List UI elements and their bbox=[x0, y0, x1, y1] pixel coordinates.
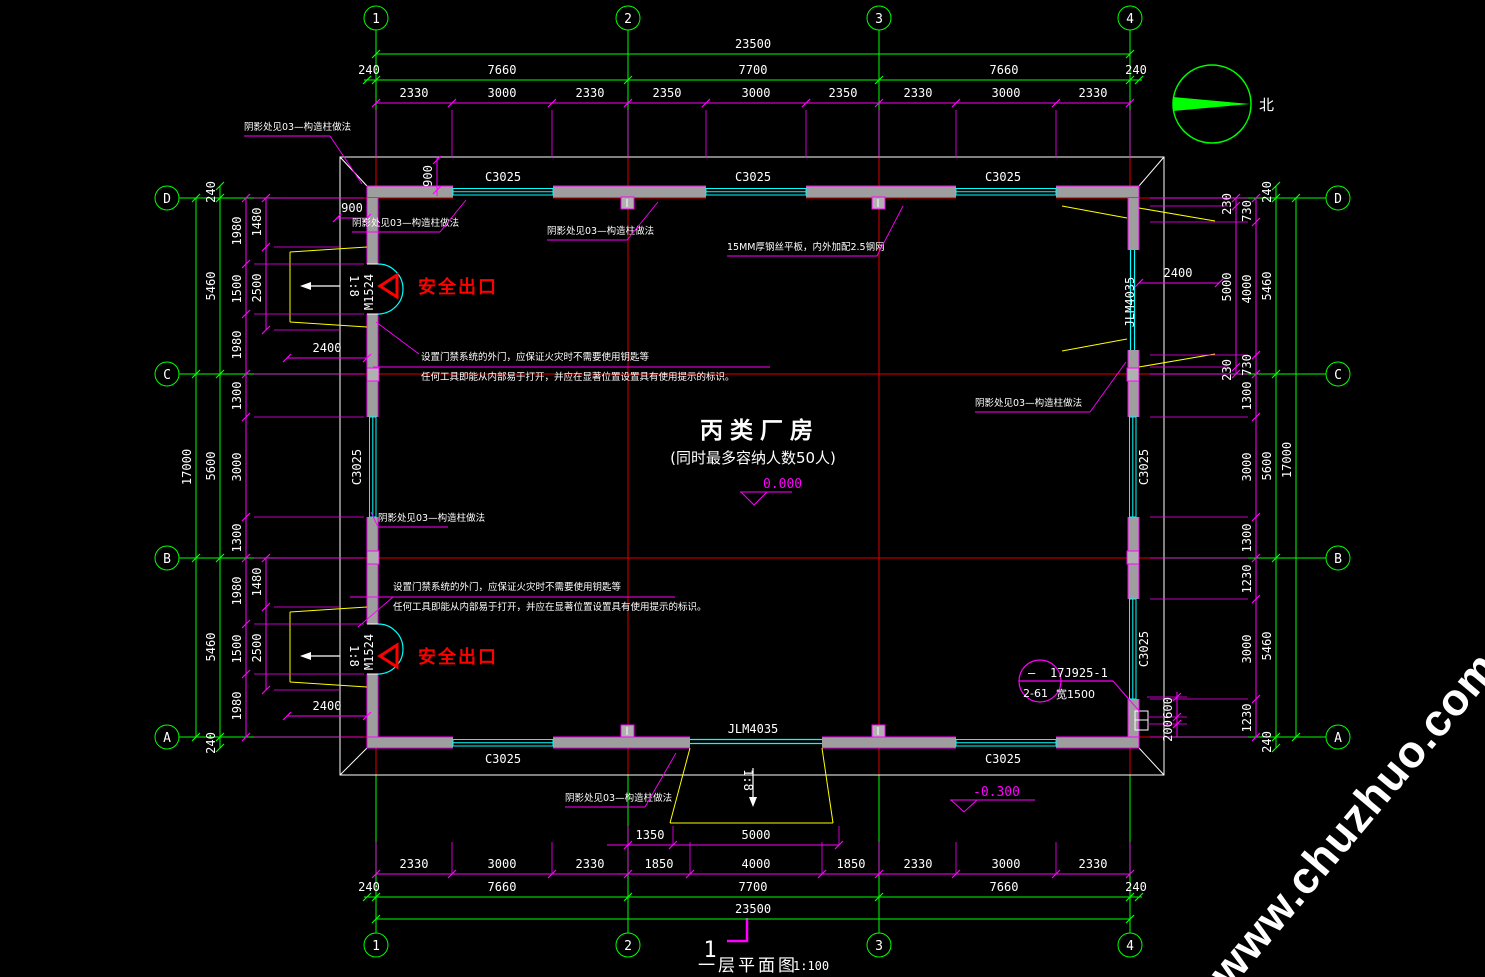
title-scale: 1:100 bbox=[793, 959, 829, 973]
detail-ref-page: 2-61 bbox=[1023, 687, 1048, 700]
window-label-right-1: C3025 bbox=[1137, 449, 1151, 485]
exit-label-top: 安全出口 bbox=[418, 276, 498, 298]
dim-line bbox=[376, 322, 419, 354]
note-text: 阴影处见03—构造柱做法 bbox=[565, 792, 672, 804]
axis-label-C-left: C bbox=[163, 368, 171, 383]
dim-label: 5460 bbox=[204, 272, 218, 301]
door-label-M1524-1: M1524 bbox=[362, 274, 376, 310]
dim-label: 5460 bbox=[1260, 632, 1274, 661]
dim-label: 7660 bbox=[990, 880, 1019, 894]
dim-label: 1850 bbox=[645, 857, 674, 871]
dim-label: 1350 bbox=[636, 828, 665, 842]
dim-label: 1980 bbox=[230, 217, 244, 246]
north-arrow-icon bbox=[1173, 97, 1250, 111]
dim-label: 4000 bbox=[742, 857, 771, 871]
dim-line bbox=[1090, 362, 1126, 412]
room-label: 丙类厂房 (同时最多容纳人数50人) bbox=[670, 417, 836, 467]
room-name: 丙类厂房 bbox=[700, 417, 820, 444]
dim-label: 230 bbox=[1220, 193, 1234, 215]
axis-label-A-right: A bbox=[1334, 731, 1342, 746]
window-label-top-3: C3025 bbox=[985, 170, 1021, 184]
north-label: 北 bbox=[1259, 96, 1274, 114]
dim-label: 230 bbox=[1220, 359, 1234, 381]
title-name: 一层平面图 bbox=[698, 956, 798, 976]
door-label-JLM4035-bottom: JLM4035 bbox=[728, 722, 779, 736]
dim-label: 1500 bbox=[230, 635, 244, 664]
safety-exit-top: 安全出口 bbox=[380, 275, 498, 298]
dim-label: 240 bbox=[1260, 181, 1274, 203]
dim-label: 240 bbox=[204, 181, 218, 203]
drawing-title: 1 一层平面图 1:100 bbox=[698, 918, 829, 976]
axis-label-4-top: 4 bbox=[1126, 12, 1134, 27]
dim-label: 240 bbox=[1260, 731, 1274, 753]
dim-label: 17000 bbox=[1280, 442, 1294, 478]
dim-label: 2330 bbox=[904, 86, 933, 100]
door-swing-arcs bbox=[378, 250, 1135, 744]
dim-label: 600 bbox=[1161, 697, 1175, 719]
note-text: 阴影处见03—构造柱做法 bbox=[975, 397, 1082, 409]
dim-label: 5600 bbox=[1260, 452, 1274, 481]
dim-label: 5600 bbox=[204, 452, 218, 481]
note-text: 任何工具即能从内部易于打开，并应在显著位置设置具有使用提示的标识。 bbox=[393, 601, 707, 613]
window-label-bottom-2: C3025 bbox=[985, 752, 1021, 766]
axis-label-D-right: D bbox=[1334, 192, 1342, 207]
dim-label: 1480 bbox=[250, 568, 264, 597]
dim-label: 2400 bbox=[313, 699, 342, 713]
dim-label: 1480 bbox=[250, 208, 264, 237]
door-label-JLM4035-right: JLM4035 bbox=[1123, 277, 1137, 328]
axis-label-C-right: C bbox=[1334, 368, 1342, 383]
dim-label: 200 bbox=[1161, 720, 1175, 742]
dim-label: 2330 bbox=[1079, 86, 1108, 100]
dim-label: 2330 bbox=[576, 86, 605, 100]
dim-label: 1230 bbox=[1240, 704, 1254, 733]
dim-label: 900 bbox=[341, 201, 363, 215]
exit-arrow-icon bbox=[380, 275, 397, 297]
window-label-right-2: C3025 bbox=[1137, 631, 1151, 667]
dim-label: 2330 bbox=[400, 86, 429, 100]
dim-label: 240 bbox=[358, 63, 380, 77]
axis-label-1-top: 1 bbox=[372, 12, 380, 27]
dim-label: 3000 bbox=[488, 86, 517, 100]
outdoor-level-marker bbox=[950, 800, 1035, 812]
dim-label: 17000 bbox=[180, 449, 194, 485]
dim-label: 1300 bbox=[1240, 382, 1254, 411]
note-text: 15MM厚钢丝平板，内外加配2.5钢网 bbox=[727, 241, 885, 253]
dim-line bbox=[877, 206, 903, 256]
dim-label: 240 bbox=[1125, 63, 1147, 77]
note-text: 设置门禁系统的外门，应保证火灾时不需要使用钥匙等 bbox=[393, 581, 622, 593]
dim-label: 1980 bbox=[230, 692, 244, 721]
dim-label: 4000 bbox=[1240, 275, 1254, 304]
dim-label: 2350 bbox=[653, 86, 682, 100]
floor-level-marker bbox=[740, 492, 792, 505]
axis-label-A-left: A bbox=[163, 731, 171, 746]
axis-label-4-bottom: 4 bbox=[1126, 939, 1134, 954]
dim-label: 730 bbox=[1240, 354, 1254, 376]
dim-label: 240 bbox=[1125, 880, 1147, 894]
dim-label: 7700 bbox=[739, 880, 768, 894]
slope-label-2: 1:8 bbox=[347, 645, 361, 667]
dim-label: 3000 bbox=[992, 857, 1021, 871]
axis-label-1-bottom: 1 bbox=[372, 939, 380, 954]
dim-label: 1300 bbox=[230, 524, 244, 553]
axis-label-B-left: B bbox=[163, 552, 171, 567]
dim-label: 2330 bbox=[904, 857, 933, 871]
dim-label: 7700 bbox=[739, 63, 768, 77]
dim-line bbox=[330, 136, 362, 184]
dim-label: 3000 bbox=[488, 857, 517, 871]
dim-label: 5000 bbox=[742, 828, 771, 842]
slope-label-3: 1:8 bbox=[741, 769, 755, 791]
dim-label: 23500 bbox=[735, 902, 771, 916]
axis-label-B-right: B bbox=[1334, 552, 1342, 567]
detail-ref-atlas: 17J925-1 bbox=[1050, 666, 1108, 680]
drawing-canvas: 1 2 3 4 1 2 3 4 D C B A D C B A bbox=[0, 0, 1485, 977]
axis-grid-green bbox=[155, 6, 1350, 957]
note-text: 设置门禁系统的外门，应保证火灾时不需要使用钥匙等 bbox=[421, 351, 650, 363]
exit-label-bottom: 安全出口 bbox=[418, 646, 498, 668]
dim-label: 2500 bbox=[250, 274, 264, 303]
detail-reference: — 17J925-1 2-61 宽1500 bbox=[1019, 660, 1140, 712]
title-bracket bbox=[727, 918, 747, 941]
dim-label: 2350 bbox=[829, 86, 858, 100]
dim-label: 1230 bbox=[1240, 565, 1254, 594]
dim-label: 1300 bbox=[230, 382, 244, 411]
dim-label: 3000 bbox=[742, 86, 771, 100]
dim-label: 7660 bbox=[488, 880, 517, 894]
dim-label: 5460 bbox=[1260, 272, 1274, 301]
dim-label: 2330 bbox=[576, 857, 605, 871]
exit-arrow-icon bbox=[380, 645, 397, 667]
room-capacity-note: (同时最多容纳人数50人) bbox=[670, 449, 836, 467]
dim-label: 3000 bbox=[230, 453, 244, 482]
dim-label: 240 bbox=[358, 880, 380, 894]
note-text: 阴影处见03—构造柱做法 bbox=[378, 512, 485, 524]
dim-label: 23500 bbox=[735, 37, 771, 51]
dim-label: 5460 bbox=[204, 633, 218, 662]
note-text: 阴影处见03—构造柱做法 bbox=[244, 121, 351, 133]
axis-label-D-left: D bbox=[163, 192, 171, 207]
outdoor-level-value: -0.300 bbox=[973, 785, 1020, 800]
dim-label: 3000 bbox=[1240, 453, 1254, 482]
detail-ref-dash: — bbox=[1028, 666, 1036, 680]
dim-label: 240 bbox=[204, 732, 218, 754]
dim-label: 5000 bbox=[1220, 273, 1234, 302]
north-arrow: 北 bbox=[1173, 65, 1274, 143]
window-label-top-2: C3025 bbox=[735, 170, 771, 184]
dim-label: 1850 bbox=[837, 857, 866, 871]
dim-label: 900 bbox=[421, 165, 435, 187]
safety-exit-bottom: 安全出口 bbox=[380, 645, 498, 668]
doors bbox=[367, 250, 1135, 744]
dim-label: 7660 bbox=[990, 63, 1019, 77]
dim-label: 2330 bbox=[400, 857, 429, 871]
axis-label-3-bottom: 3 bbox=[875, 939, 883, 954]
door-label-M1524-2: M1524 bbox=[362, 634, 376, 670]
dim-label: 7660 bbox=[488, 63, 517, 77]
dim-label: 730 bbox=[1240, 200, 1254, 222]
note-text: 任何工具即能从内部易于打开，并应在显著位置设置具有使用提示的标识。 bbox=[421, 371, 735, 383]
dim-label: 1980 bbox=[230, 331, 244, 360]
axis-label-2-top: 2 bbox=[624, 12, 632, 27]
slope-label-1: 1:8 bbox=[347, 275, 361, 297]
note-text: 阴影处见03—构造柱做法 bbox=[352, 217, 459, 229]
cad-floor-plan: 1 2 3 4 1 2 3 4 D C B A D C B A bbox=[0, 0, 1485, 977]
pilaster-marks bbox=[627, 199, 878, 735]
axis-label-3-top: 3 bbox=[875, 12, 883, 27]
dim-label: 1500 bbox=[230, 275, 244, 304]
dim-label: 1300 bbox=[1240, 524, 1254, 553]
detail-ref-width: 宽1500 bbox=[1056, 687, 1095, 701]
axis-label-2-bottom: 2 bbox=[624, 939, 632, 954]
dim-label: 2400 bbox=[313, 341, 342, 355]
window-label-top-1: C3025 bbox=[485, 170, 521, 184]
dim-label: 3000 bbox=[992, 86, 1021, 100]
window-label-left: C3025 bbox=[350, 449, 364, 485]
dim-label: 1980 bbox=[230, 577, 244, 606]
window-label-bottom-1: C3025 bbox=[485, 752, 521, 766]
dim-label: 3000 bbox=[1240, 635, 1254, 664]
floor-level-value: 0.000 bbox=[763, 477, 802, 492]
dim-label: 2400 bbox=[1164, 266, 1193, 280]
dim-label: 2500 bbox=[250, 634, 264, 663]
dim-label: 2330 bbox=[1079, 857, 1108, 871]
